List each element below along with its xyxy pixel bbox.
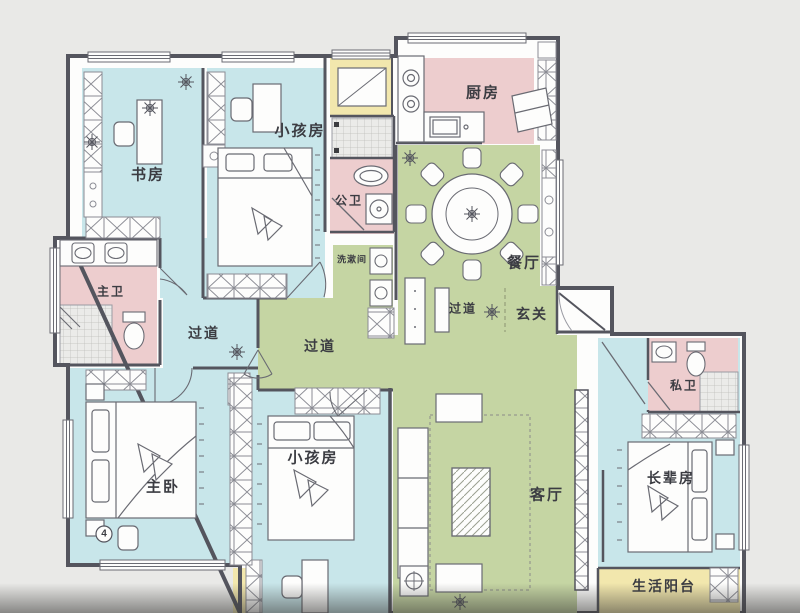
armchair-icon	[436, 394, 482, 422]
chair-icon	[282, 576, 302, 598]
room-label-public-bath: 公卫	[335, 192, 363, 209]
dimension-marker-label: 4	[101, 529, 107, 540]
room-label-laundry: 洗漱间	[337, 253, 367, 266]
stove-counter-icon	[398, 56, 424, 142]
hallway-cabinet-icon	[405, 278, 425, 344]
toilet-icon	[687, 342, 705, 376]
room-label-kids-top: 小孩房	[274, 120, 325, 141]
basin-icon	[370, 280, 392, 306]
coffee-table-icon	[452, 468, 490, 536]
basin-icon	[370, 248, 392, 274]
bed-icon	[218, 148, 312, 266]
sofa-icon	[398, 428, 428, 578]
room-label-kitchen: 厨房	[466, 82, 500, 103]
chair-icon	[406, 205, 426, 223]
room-label-living: 客厅	[530, 484, 564, 505]
nightstand-icon	[716, 440, 734, 455]
side-table-icon	[400, 566, 428, 596]
room-label-study: 书房	[131, 164, 165, 185]
chair-icon	[518, 205, 538, 223]
sink-icon	[652, 342, 676, 362]
bed-icon	[86, 402, 196, 518]
bed-icon	[268, 416, 354, 540]
room-label-kids-bottom: 小孩房	[287, 447, 338, 468]
room-label-corridor-entry: 过道	[449, 300, 477, 317]
chair-icon	[118, 526, 138, 550]
chair-icon	[114, 122, 134, 146]
room-label-balcony: 生活阳台	[632, 576, 696, 596]
nightstand-icon	[86, 384, 104, 400]
living-elder-wall	[575, 390, 588, 590]
room-label-private-bath: 私卫	[670, 377, 698, 394]
armchair-icon	[436, 564, 482, 592]
shoe-cabinet-icon	[435, 288, 449, 332]
room-label-elder: 长辈房	[647, 468, 695, 488]
room-label-dining: 餐厅	[507, 252, 541, 273]
nightstand-icon	[716, 534, 734, 549]
floor-plan-canvas	[0, 0, 800, 613]
toilet-icon	[123, 312, 145, 349]
chair-icon	[463, 148, 481, 168]
room-label-foyer: 玄关	[516, 304, 548, 324]
desk-icon	[302, 560, 328, 613]
floor-plan: 书房 小孩房 公卫 洗漱间 厨房 餐厅 过道 玄关 过道 过道 主卫 主卧 小孩…	[0, 0, 800, 613]
chair-icon	[231, 98, 252, 121]
chair-icon	[463, 260, 481, 280]
bed-icon	[628, 442, 712, 552]
washing-machine-icon	[366, 194, 392, 224]
room-label-corridor-mid: 过道	[304, 336, 336, 356]
room-label-master-bath: 主卫	[97, 283, 125, 300]
room-label-corridor-left: 过道	[188, 323, 220, 343]
fridge-icon	[512, 88, 552, 132]
room-label-master-bedroom: 主卧	[146, 476, 180, 497]
